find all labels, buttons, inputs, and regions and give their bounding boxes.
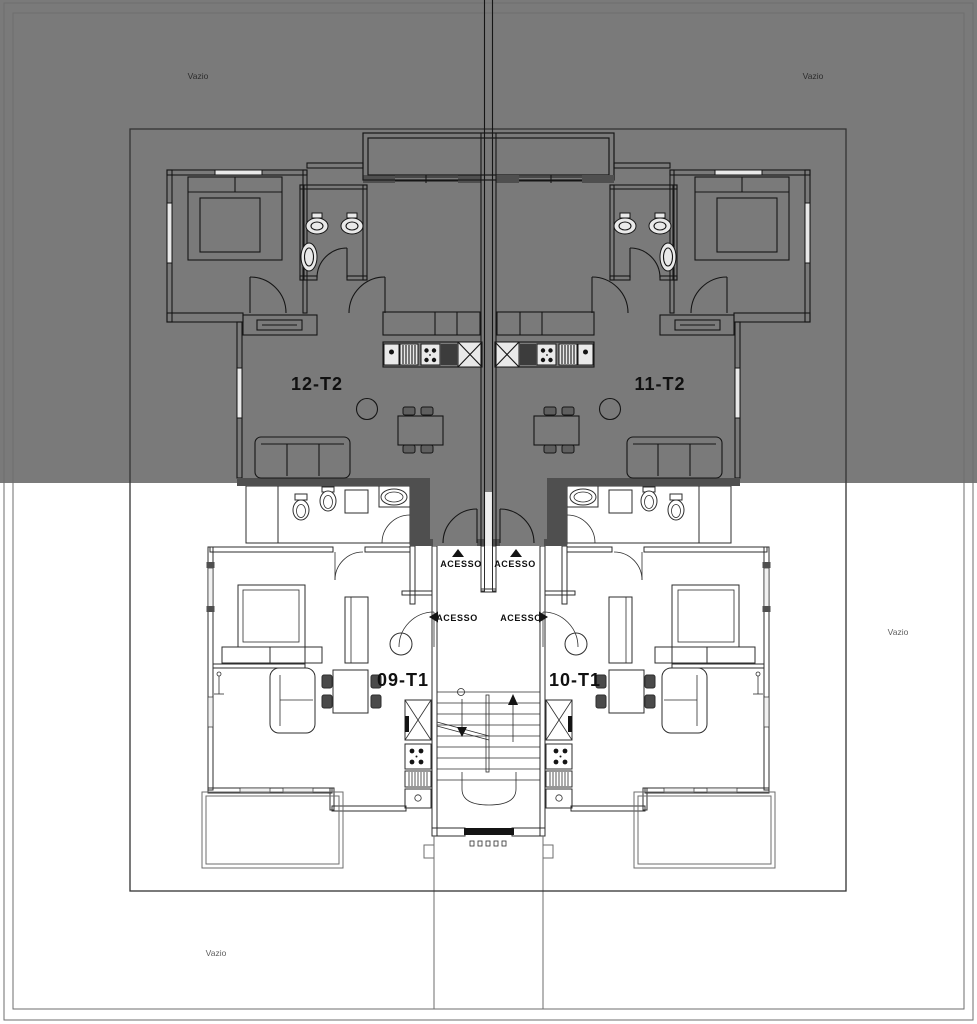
balcony [202,792,343,868]
right-arrow-icon [539,612,548,623]
acesso-mid-right-label: ACESSO [500,613,542,623]
upper-floor-overlay [0,0,977,546]
sink-icon [405,789,431,808]
sink-icon [384,344,399,365]
window [208,568,213,608]
door-arc [382,515,410,545]
column [390,633,412,655]
wardrobe [345,597,368,663]
dish-rack-icon [400,344,418,365]
corner-cabinet [458,342,482,367]
radiator-icon [214,672,224,694]
hall-entrance [432,828,545,846]
stair-up-arrow-icon [508,694,518,742]
unit-label-10-t1: 10-T1 [549,670,601,690]
access-annotations: ACESSO ACESSO ACESSO ACESSO [429,549,548,623]
washbasin-icon [379,486,410,507]
washbasin-icon [301,243,317,271]
bathroom-lower [246,486,410,545]
bidet-icon [320,487,336,511]
stair-down-arrow-icon [457,699,467,737]
acesso-mid-left-label: ACESSO [436,613,478,623]
staircase [437,689,540,806]
shower-tray [345,490,368,513]
vazio-right-label: Vazio [888,627,909,637]
unit-label-09-t1: 09-T1 [377,670,429,690]
acesso-upper-right-label: ACESSO [494,559,536,569]
sofa-icon [270,668,315,733]
up-arrow-icon [510,549,522,557]
up-arrow-icon [452,549,464,557]
door-arc [399,612,434,647]
floor-plan-canvas: ACESSO ACESSO ACESSO ACESSO 12-T2 11-T2 … [0,0,977,1024]
unit-label-11-t2: 11-T2 [634,374,685,394]
vazio-top-right-label: Vazio [803,71,824,81]
vazio-top-left-label: Vazio [188,71,209,81]
window [208,697,213,727]
vazio-bottom-left-label: Vazio [206,948,227,958]
floor-plan-drawing: ACESSO ACESSO ACESSO ACESSO 12-T2 11-T2 … [0,0,977,1024]
facade-wall [208,788,406,811]
stove-icon [421,344,440,365]
window [237,368,242,418]
toilet-icon [293,494,309,520]
dish-rack-icon [405,771,431,787]
bed-icon [222,585,322,663]
window [215,170,262,175]
dining-table-icon [322,670,381,713]
entrance-door [464,828,514,835]
entry-walkway [424,836,553,1009]
acesso-upper-left-label: ACESSO [440,559,482,569]
window [167,203,172,263]
kitchen-lower [405,700,431,808]
unit-label-12-t2: 12-T2 [291,374,343,394]
door-arc [335,552,363,580]
stove-icon [405,744,431,769]
partition-wall [213,664,305,668]
